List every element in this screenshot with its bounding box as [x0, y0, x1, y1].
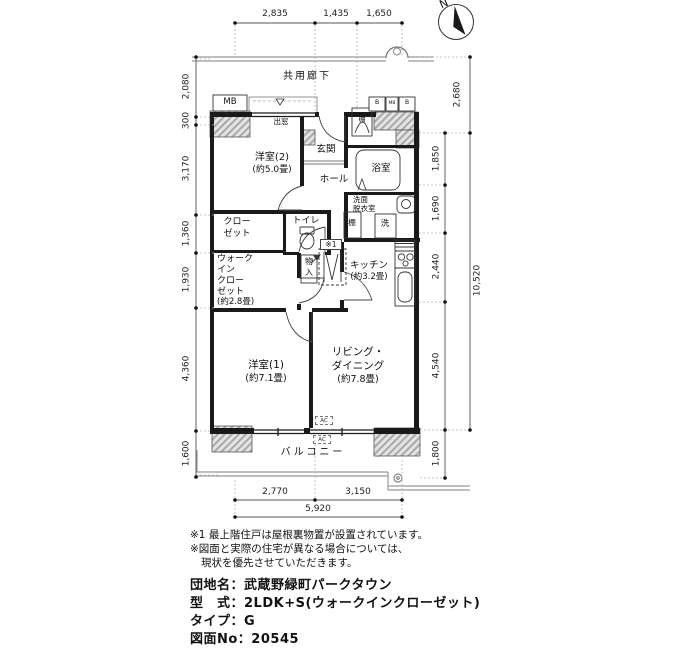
label-shelf-top: 棚	[359, 115, 366, 123]
label-wic-2: イン	[217, 265, 235, 275]
kitchen-sink	[398, 272, 412, 302]
vanity-sink	[397, 196, 415, 213]
dim-bottom: 3,150	[345, 488, 371, 497]
dim-left: 1,930	[183, 252, 192, 308]
dim-left: 4,360	[183, 341, 192, 397]
note-ref-box: ※1	[320, 239, 342, 250]
dim-top: 2,835	[262, 10, 288, 19]
dim-bottom: 2,770	[262, 488, 288, 497]
label-bath: 浴室	[371, 164, 390, 175]
label-kitchen-size: (約3.2畳)	[350, 273, 387, 283]
dim-top: 1,650	[366, 10, 392, 19]
floor-plan-page: N 2,835 1,435 1,650 2,080 300 3,170 1,36…	[0, 0, 700, 650]
label-living-size: (約7.8畳)	[337, 375, 379, 386]
label-bay-window: 出窓	[274, 118, 289, 127]
label-washroom-2: 脱衣室	[353, 205, 376, 214]
info-estate-name: 団地名：武蔵野緑町パークタウン	[190, 574, 392, 593]
label-bedroom2: 洋室(2)	[255, 152, 289, 164]
label-closet-2: ゼット	[223, 229, 250, 239]
label-bedroom1: 洋室(1)	[248, 359, 284, 371]
info-drawing-no: 図面No：20545	[190, 628, 299, 647]
dim-right-outer: 2,680	[454, 67, 463, 123]
label-wic-size: (約2.8畳)	[217, 298, 254, 308]
label-closet-1: クロー	[223, 217, 250, 227]
dim-right-outer: 10,520	[474, 253, 483, 309]
label-living-2: ダイニング	[332, 360, 385, 372]
footnote-2: ※図面と実際の住宅が異なる場合については、	[190, 541, 408, 556]
corridor-lines	[192, 47, 434, 61]
label-wic-3: クロー	[217, 276, 244, 286]
label-corridor: 共用廊下	[283, 71, 331, 83]
dim-right: 1,800	[433, 426, 442, 482]
ac-box-1: AC	[315, 416, 333, 425]
dim-right: 1,850	[433, 131, 442, 187]
dim-left: 3,170	[183, 141, 192, 197]
footnote-1: ※1 最上階住戸は屋根裏物置が設置されています。	[190, 527, 428, 542]
label-balcony: バルコニー	[281, 447, 346, 459]
dim-right: 4,540	[433, 338, 442, 394]
label-meter-mb: MB	[389, 101, 396, 106]
label-bedroom2-size: (約5.0畳)	[252, 165, 291, 175]
dim-right: 2,440	[433, 239, 442, 295]
label-shelf-mid: 棚	[348, 219, 356, 228]
label-meter-b2: B	[405, 100, 409, 107]
label-wic-1: ウォーク	[217, 254, 253, 264]
footnote-3: 現状を優先させていただきます。	[201, 555, 357, 570]
attic-ladder-icon	[324, 252, 341, 282]
label-wic-4: ゼット	[217, 287, 244, 297]
walls	[210, 112, 420, 434]
dim-right: 1,690	[433, 181, 442, 237]
label-entrance: 玄関	[316, 145, 335, 156]
label-storage-1: 物	[305, 257, 313, 266]
label-meter-b1: B	[375, 100, 379, 107]
label-living-1: リビング・	[332, 346, 385, 358]
dim-bottom-total: 5,920	[305, 505, 331, 514]
info-layout-type: 型 式：2LDK+S(ウォークインクローゼット)	[190, 592, 480, 611]
bay-window	[249, 97, 317, 113]
label-hall: ホール	[320, 175, 349, 186]
label-toilet: トイレ	[292, 216, 319, 226]
label-mb: MB	[223, 98, 236, 108]
label-kitchen: キッチン	[350, 261, 388, 272]
label-storage-2: 入	[305, 268, 313, 277]
dim-left: 1,600	[183, 426, 192, 482]
info-type: タイプ：G	[190, 610, 255, 629]
ac-box-2: AC	[313, 435, 331, 444]
dim-top: 1,435	[323, 10, 349, 19]
label-washer: 洗	[381, 220, 390, 230]
label-bedroom1-size: (約7.1畳)	[245, 374, 287, 385]
